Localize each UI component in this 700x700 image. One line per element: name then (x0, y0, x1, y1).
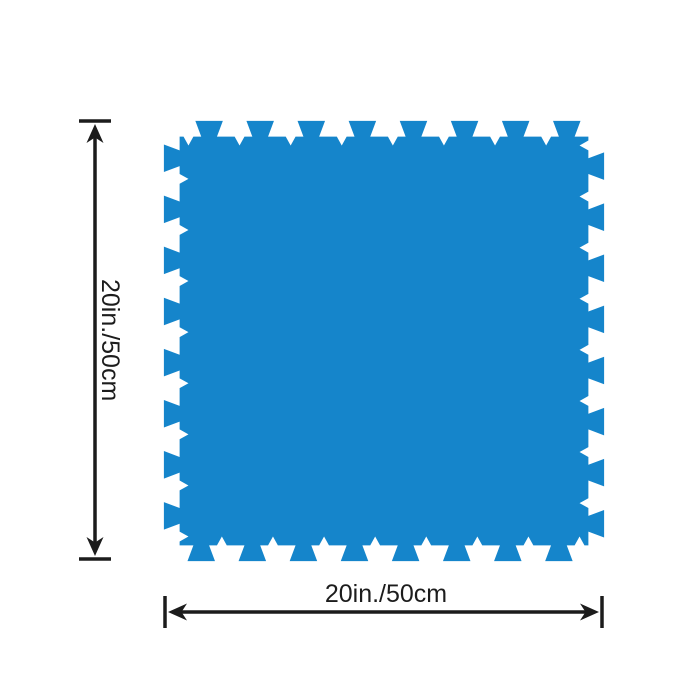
height-dimension: 20in./50cm (70, 112, 200, 568)
product-dimension-diagram: 20in./50cm 20in./50cm (0, 0, 700, 700)
width-dimension: 20in./50cm (156, 586, 616, 638)
height-dimension-label: 20in./50cm (97, 112, 123, 568)
puzzle-mat-icon (158, 115, 610, 567)
puzzle-mat-shape (164, 121, 604, 561)
width-dimension-label: 20in./50cm (156, 582, 616, 607)
foam-mat-image (158, 115, 610, 567)
